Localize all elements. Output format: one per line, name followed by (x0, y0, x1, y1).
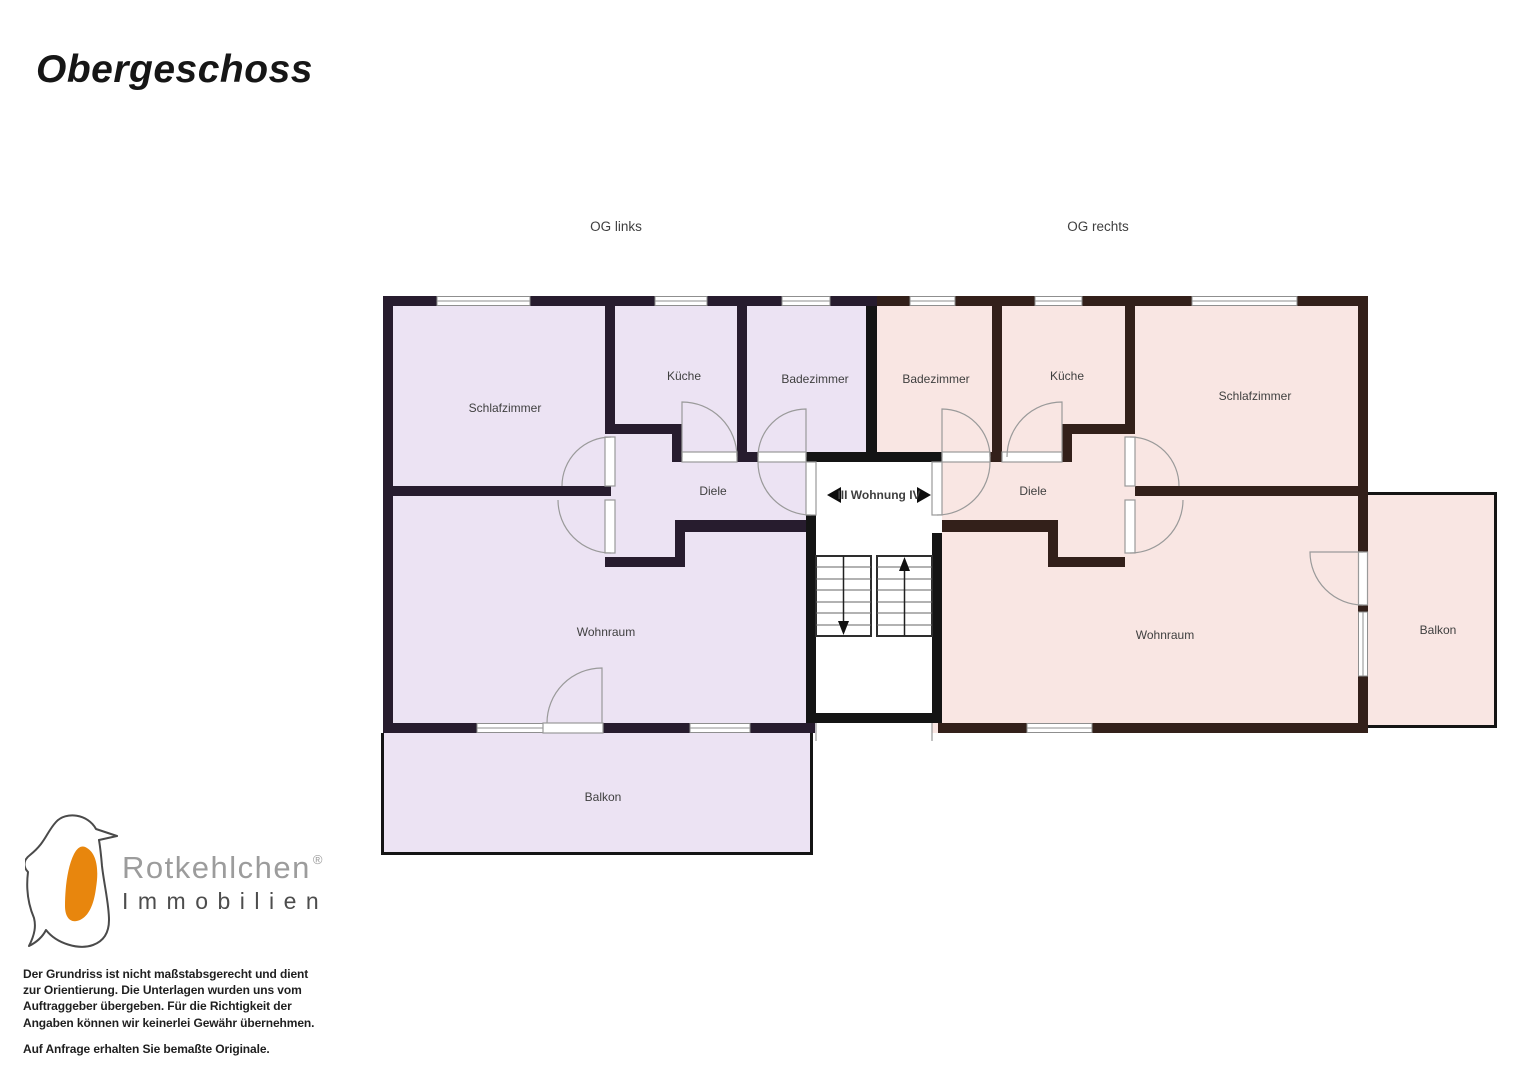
logo-brand: Rotkehlchen (122, 850, 311, 885)
label-wohnraum-left: Wohnraum (577, 625, 635, 639)
disclaimer-note: Auf Anfrage erhalten Sie bemaßte Origina… (23, 1042, 383, 1056)
label-badezimmer-right: Badezimmer (902, 372, 969, 386)
label-kueche-right: Küche (1050, 369, 1084, 383)
label-kueche-left: Küche (667, 369, 701, 383)
label-stairwell-wohnung: III Wohnung IV (837, 488, 920, 502)
disclaimer-paragraph: Der Grundriss ist nicht maßstabsgerecht … (23, 966, 383, 1031)
label-schlafzimmer-left: Schlafzimmer (469, 401, 542, 415)
logo-brand-line: Rotkehlchen® (122, 852, 328, 883)
right-balcony-area (1368, 492, 1497, 728)
logo-text: Rotkehlchen® Immobilien (122, 852, 328, 913)
label-badezimmer-left: Badezimmer (781, 372, 848, 386)
logo-subtitle: Immobilien (122, 890, 328, 913)
label-og-links: OG links (590, 219, 642, 234)
label-schlafzimmer-right: Schlafzimmer (1219, 389, 1292, 403)
company-logo: Rotkehlchen® Immobilien (25, 806, 385, 966)
registered-mark: ® (313, 852, 324, 867)
label-wohnraum-right: Wohnraum (1136, 628, 1194, 642)
bird-beak-line (99, 836, 117, 840)
label-diele-right: Diele (1019, 484, 1047, 498)
bird-breast-orange (65, 846, 97, 921)
floorplan-page: Obergeschoss (0, 0, 1527, 1080)
label-og-rechts: OG rechts (1067, 219, 1129, 234)
label-balkon-right: Balkon (1420, 623, 1457, 637)
label-diele-left: Diele (699, 484, 727, 498)
entrance-gap (816, 723, 932, 745)
right-apartment-area (877, 296, 1368, 733)
label-balkon-left: Balkon (585, 790, 622, 804)
